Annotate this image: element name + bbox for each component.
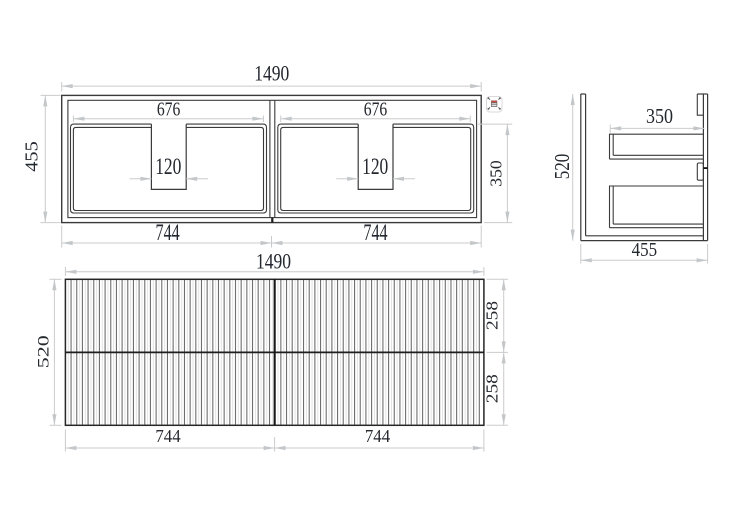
svg-text:676: 676 <box>364 98 388 120</box>
svg-text:520: 520 <box>35 335 52 368</box>
svg-text:744: 744 <box>156 220 181 245</box>
svg-text:120: 120 <box>155 154 181 179</box>
svg-text:455: 455 <box>21 141 41 172</box>
svg-text:350: 350 <box>646 104 673 128</box>
svg-text:744: 744 <box>155 426 180 446</box>
svg-text:258: 258 <box>482 374 501 403</box>
svg-text:258: 258 <box>482 301 501 330</box>
svg-text:1490: 1490 <box>254 61 289 86</box>
svg-text:120: 120 <box>362 154 388 179</box>
svg-text:1490: 1490 <box>256 248 291 273</box>
svg-text:744: 744 <box>365 426 390 446</box>
svg-text:350: 350 <box>486 160 505 187</box>
svg-text:676: 676 <box>157 98 181 120</box>
svg-text:520: 520 <box>550 154 574 180</box>
svg-text:744: 744 <box>363 220 388 245</box>
svg-text:455: 455 <box>632 239 658 261</box>
